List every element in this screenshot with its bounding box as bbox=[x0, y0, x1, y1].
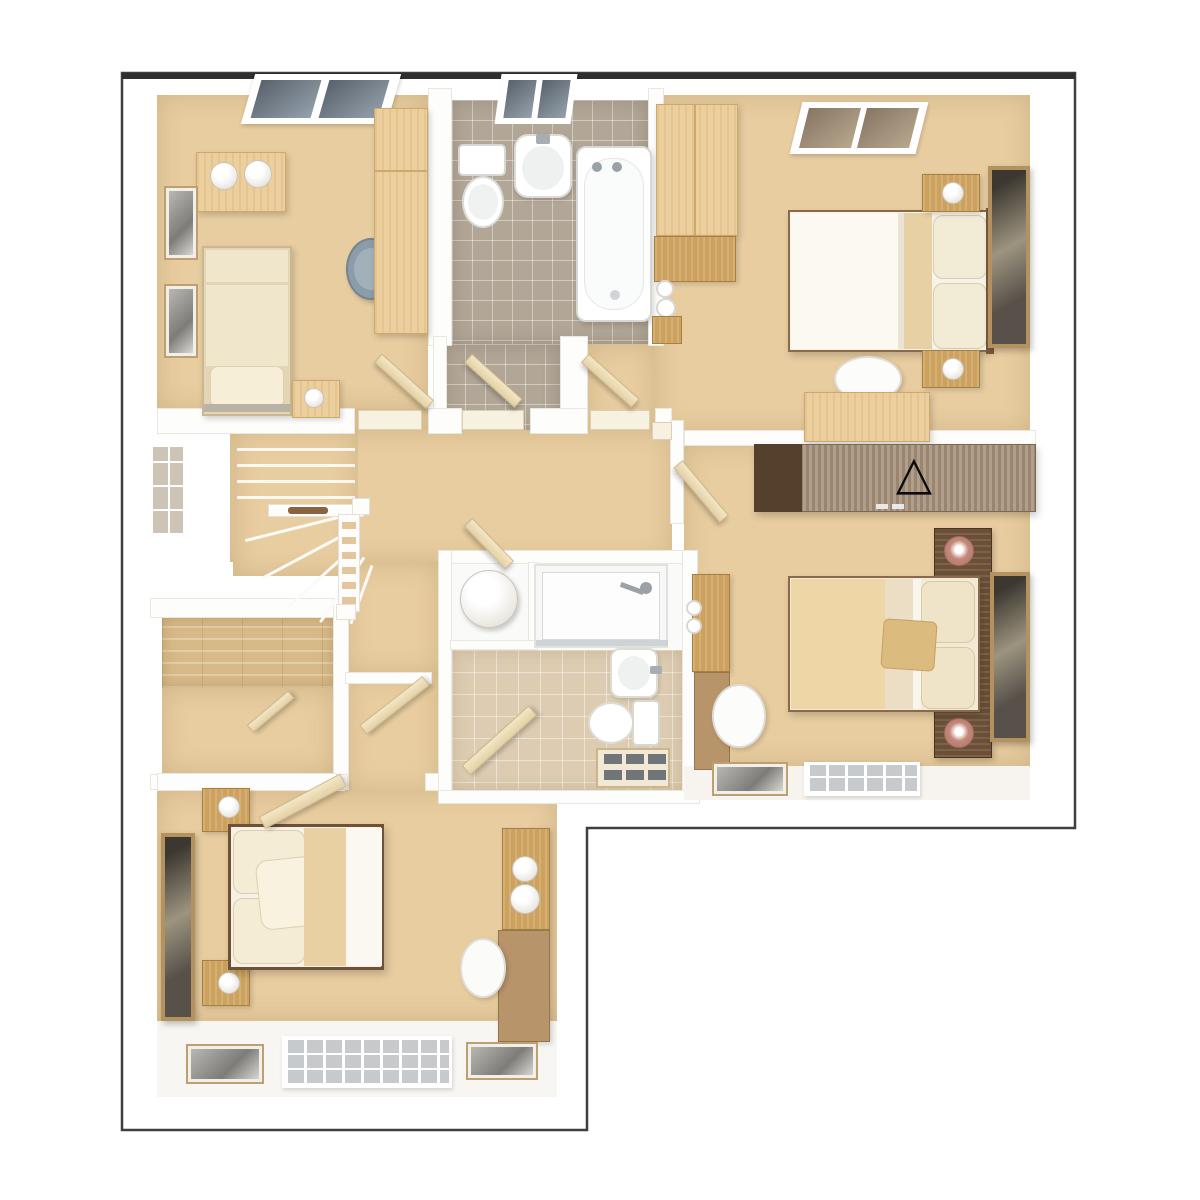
ensuite-toilet-cistern bbox=[632, 700, 660, 746]
wall-store-right bbox=[333, 598, 349, 790]
ensuite-drain-slat bbox=[626, 770, 644, 780]
bedroom2-towel-roll bbox=[686, 600, 702, 616]
bedroom1-pillow bbox=[933, 215, 987, 279]
wall-vestibule-right bbox=[560, 336, 588, 412]
master-nightstand-lamp bbox=[218, 972, 240, 994]
bedroom2-cushion bbox=[880, 618, 937, 672]
bedroom1-cabinet bbox=[652, 316, 682, 344]
sill-bed1 bbox=[590, 410, 650, 430]
bedroom1-nightstand-lamp bbox=[942, 358, 964, 380]
stairs-window bbox=[148, 444, 186, 538]
bathroom-toilet-seat bbox=[468, 184, 498, 220]
master-mirror bbox=[161, 833, 195, 1021]
ensuite-drain-slat bbox=[648, 754, 666, 764]
bedroom2-lamp-pink bbox=[944, 718, 974, 748]
bedroom2-lamp-pink bbox=[944, 536, 974, 566]
sill-bed3 bbox=[358, 410, 422, 430]
bedroom3-bed-fold bbox=[206, 282, 288, 285]
bedroom2-bed-duvet bbox=[791, 579, 885, 709]
bedroom1-skylight-pane bbox=[857, 108, 919, 148]
master-bed-duvet bbox=[346, 828, 382, 966]
master-cabinet bbox=[498, 930, 550, 1042]
bedroom1-pillow bbox=[933, 283, 987, 349]
bathroom-bathtub-basin bbox=[584, 158, 644, 310]
master-chair bbox=[460, 938, 506, 998]
bedroom1-nightstand-lamp bbox=[942, 182, 964, 204]
stair-newel-bottom bbox=[336, 604, 356, 620]
bathroom-bath-tap bbox=[592, 162, 602, 172]
bedroom2-picture bbox=[714, 764, 786, 794]
bedroom3-wardrobe bbox=[374, 108, 428, 334]
bedroom2-wardrobe-handle bbox=[892, 504, 904, 509]
bathroom-toilet-cistern bbox=[458, 144, 506, 176]
bathroom-basin-bowl bbox=[522, 146, 564, 190]
bedroom1-wardrobe-divider bbox=[694, 104, 696, 236]
ensuite-shower-head bbox=[640, 582, 652, 594]
ensuite-basin-bowl bbox=[618, 656, 650, 690]
ensuite-shower-glass bbox=[536, 640, 668, 646]
stair-newel-top bbox=[352, 498, 370, 515]
bedroom3-dresser-lamp bbox=[210, 162, 238, 190]
balustrade-gap bbox=[342, 537, 356, 544]
master-dressing-bowl bbox=[510, 884, 540, 914]
bedroom2-wardrobe-end bbox=[754, 444, 802, 512]
master-bed-runner bbox=[304, 828, 346, 966]
bedroom2-towel-roll bbox=[686, 618, 702, 634]
sill-bed2 bbox=[652, 422, 672, 440]
wall-ensuite-top bbox=[438, 550, 698, 564]
stair-handrail-wood bbox=[288, 507, 328, 514]
bedroom1-wardrobe bbox=[656, 104, 738, 236]
bedroom3-bed-foot-rail bbox=[204, 404, 290, 412]
bathroom-window-pane bbox=[503, 80, 536, 118]
bedroom3-wardrobe-divider bbox=[374, 170, 428, 172]
bathroom-bath-drain bbox=[610, 290, 620, 300]
balustrade-gap bbox=[342, 597, 356, 604]
stair-tread bbox=[237, 464, 355, 467]
balustrade-gap bbox=[342, 582, 356, 589]
stair-tread bbox=[237, 448, 355, 451]
ensuite-drain-slat bbox=[626, 754, 644, 764]
ensuite-basin-tap bbox=[650, 666, 662, 674]
balustrade-gap bbox=[342, 552, 356, 559]
bedroom1-mirror bbox=[988, 166, 1030, 348]
bathroom-bath-tap bbox=[612, 162, 622, 172]
bedroom1-bed-runner bbox=[904, 213, 932, 349]
sill-bath bbox=[462, 410, 524, 430]
bedroom1-desk bbox=[804, 392, 930, 442]
ensuite-drain-slat bbox=[604, 754, 622, 764]
master-window bbox=[282, 1036, 452, 1088]
balustrade-gap bbox=[342, 567, 356, 574]
bedroom3-picture bbox=[166, 188, 196, 258]
bedroom3-picture bbox=[166, 286, 196, 356]
wall-ensuite-bottom bbox=[438, 790, 700, 804]
balustrade-gap bbox=[342, 522, 356, 529]
bedroom3-bed-pillow bbox=[210, 366, 284, 408]
wall-vestibule-left bbox=[433, 336, 447, 412]
bedroom3-skylight-pane bbox=[251, 80, 322, 118]
ensuite-drain-slat bbox=[648, 770, 666, 780]
master-dressing-mirror bbox=[512, 856, 538, 882]
ensuite-drain-slat bbox=[604, 770, 622, 780]
master-picture bbox=[468, 1044, 536, 1078]
bedroom3-bed-duvet bbox=[206, 250, 288, 366]
master-picture bbox=[188, 1046, 262, 1082]
wardrobe-annotation-triangle: △ bbox=[886, 444, 942, 504]
floorplan-stage: △ bbox=[0, 0, 1200, 1200]
ensuite-laundry-sphere bbox=[460, 570, 518, 628]
wall-hall-b bbox=[428, 408, 462, 434]
bathroom-window-pane bbox=[537, 80, 570, 118]
store-wood-floor bbox=[162, 618, 333, 688]
bedroom2-window bbox=[804, 762, 920, 796]
bedroom1-skylight-pane bbox=[799, 108, 861, 148]
bedroom1-desk-unit bbox=[654, 236, 736, 282]
plan-canvas bbox=[0, 0, 1200, 1200]
bedroom3-dresser-lamp bbox=[244, 160, 272, 188]
wall-alcove-front bbox=[450, 640, 538, 650]
bedroom3-bedside-lamp bbox=[304, 388, 324, 408]
stair-tread bbox=[237, 480, 355, 483]
bathroom-basin-tap bbox=[536, 134, 550, 144]
ensuite-toilet-bowl bbox=[588, 702, 634, 744]
bedroom2-chair bbox=[712, 684, 766, 748]
wall-store-top bbox=[150, 598, 346, 618]
master-nightstand-lamp bbox=[218, 796, 240, 818]
bedroom3-dresser bbox=[196, 152, 286, 212]
bedroom1-towel-roll bbox=[656, 298, 676, 318]
wall-bed3-bath bbox=[428, 88, 452, 346]
bedroom1-bed-duvet bbox=[791, 213, 903, 349]
bedroom2-wardrobe-handle bbox=[876, 504, 888, 509]
wall-ensuite-left bbox=[438, 550, 452, 804]
bedroom2-mirror bbox=[990, 572, 1030, 742]
store-carpet-floor bbox=[162, 688, 333, 774]
bedroom1-towel-roll bbox=[656, 280, 674, 298]
wall-hall-c bbox=[530, 408, 588, 434]
stair-tread bbox=[237, 496, 355, 499]
